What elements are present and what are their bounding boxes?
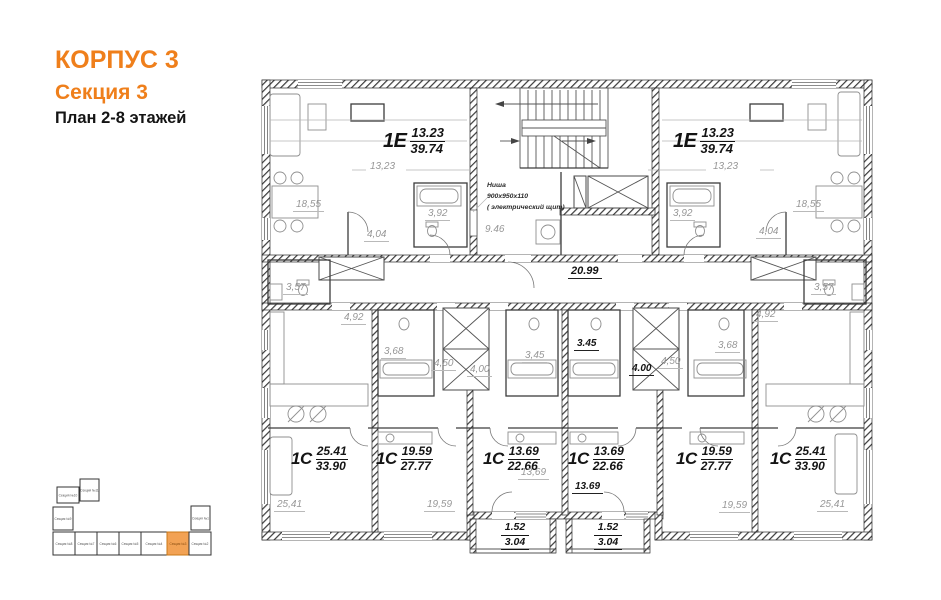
svg-text:Секция №8: Секция №8	[56, 542, 73, 546]
apartment-label-1s-r2: 1С 13.6922.66	[568, 445, 625, 474]
room-area-label: 4.00	[629, 363, 654, 376]
minimap-section-3[interactable]: Секция №3	[167, 532, 189, 555]
minimap-section-8[interactable]: Секция №8	[53, 532, 75, 555]
minimap-section-4[interactable]: Секция №4	[141, 532, 167, 555]
minimap-section-1[interactable]: Секция №1	[191, 506, 210, 530]
electrical-niche	[470, 210, 477, 236]
room-area-label: 4,92	[341, 312, 366, 325]
area-living: 13.69	[593, 445, 625, 460]
plan-title: План 2-8 этажей	[55, 109, 186, 129]
svg-text:Секция №2: Секция №2	[192, 542, 209, 546]
staircase	[495, 88, 608, 168]
room-area-label: 19,59	[424, 499, 455, 512]
area-total: 33.90	[795, 460, 827, 474]
area-total: 22.66	[593, 460, 625, 474]
svg-text:Секция №11: Секция №11	[80, 489, 99, 493]
area-living: 13.69	[508, 445, 540, 460]
area-living: 13.23	[410, 126, 445, 142]
stair-arrow-up-icon	[495, 101, 504, 107]
area-living: 25.41	[795, 445, 827, 460]
apartment-label-1e-right: 1Е 13.2339.74	[673, 126, 735, 157]
room-area-label: 3.45	[574, 338, 599, 351]
room-area-label: 25,41	[817, 499, 848, 512]
room-area-label: 3,68	[381, 346, 406, 359]
niche-annotation: Ниша 900х950х110 ( электрический щит)	[487, 181, 565, 214]
apartment-label-1s-l1: 1С 19.5927.77	[376, 445, 433, 474]
minimap-section-2[interactable]: Секция №2	[189, 532, 211, 555]
minimap-section-5[interactable]: Секция №5	[119, 532, 141, 555]
apartment-label-1s-r1: 1С 19.5927.77	[676, 445, 733, 474]
title-block: КОРПУС 3 Секция 3 План 2-8 этажей	[55, 45, 186, 129]
apartment-type: 1С	[291, 449, 312, 469]
vent-shafts	[443, 308, 679, 390]
balcony-area-full: 3.04	[501, 536, 529, 551]
apartment-type: 1Е	[383, 130, 406, 153]
minimap: Секция №10 Секция №11 Секция №9 Секция №…	[53, 479, 211, 555]
room-dim-label: 13,23	[367, 161, 398, 173]
minimap-section-9[interactable]: Секция №9	[53, 507, 73, 530]
apartment-type: 1С	[483, 449, 504, 469]
room-area-label: 13.69	[572, 481, 603, 494]
area-living: 19.59	[401, 445, 433, 460]
minimap-section-7[interactable]: Секция №7	[75, 532, 97, 555]
balcony-label-left: 1.52 3.04	[496, 521, 534, 550]
minimap-section-11[interactable]: Секция №11	[80, 479, 99, 501]
apartment-label-1s-l0: 1С 25.4133.90	[291, 445, 348, 474]
stair-arrow-icon	[511, 138, 520, 144]
room-area-label: 4,50	[658, 356, 683, 369]
minimap-section-10[interactable]: Секция №10	[57, 487, 79, 503]
area-living: 19.59	[701, 445, 733, 460]
washer	[536, 220, 560, 244]
room-area-label: 3,57	[811, 282, 836, 295]
room-area-label: 3,92	[425, 208, 450, 221]
apartment-label-1e-left: 1Е 13.2339.74	[383, 126, 445, 157]
apartment-type: 1С	[676, 449, 697, 469]
balcony-label-right: 1.52 3.04	[589, 521, 627, 550]
room-dim-label: 13,23	[710, 161, 741, 173]
apartment-type: 1С	[376, 449, 397, 469]
section-title: Секция 3	[55, 80, 186, 105]
room-area-label: 3,92	[670, 208, 695, 221]
svg-text:Секция №5: Секция №5	[122, 542, 139, 546]
niche-line: ( электрический щит)	[487, 203, 565, 214]
svg-text:Секция №4: Секция №4	[146, 542, 163, 546]
area-total: 39.74	[410, 142, 445, 157]
leader-lines	[270, 120, 862, 170]
area-total: 27.77	[401, 460, 433, 474]
area-total: 39.74	[700, 142, 735, 157]
svg-text:Секция №10: Секция №10	[59, 494, 78, 498]
svg-text:Секция №9: Секция №9	[55, 517, 72, 521]
apartment-type: 1С	[770, 449, 791, 469]
room-area-label: 4,92	[753, 309, 778, 322]
room-area-label: 3,45	[522, 350, 547, 363]
room-area-label: 18,55	[293, 199, 324, 212]
corridor-area-label: 20.99	[568, 265, 602, 279]
area-total: 27.77	[701, 460, 733, 474]
svg-text:Секция №3: Секция №3	[170, 542, 187, 546]
room-area-label: 4,50	[431, 358, 456, 371]
building-title: КОРПУС 3	[55, 45, 186, 75]
niche-line: 900х950х110	[487, 192, 565, 203]
balcony-area-reduced: 1.52	[501, 521, 529, 536]
area-living: 25.41	[316, 445, 348, 460]
room-area-label: 13,69	[518, 467, 549, 480]
svg-text:Секция №7: Секция №7	[78, 542, 95, 546]
area-total: 33.90	[316, 460, 348, 474]
balcony-area-reduced: 1.52	[594, 521, 622, 536]
room-area-label: 3,68	[715, 340, 740, 353]
room-area-label: 18,55	[793, 199, 824, 212]
area-living: 13.23	[700, 126, 735, 142]
apartment-label-1s-r0: 1С 25.4133.90	[770, 445, 827, 474]
apartment-type: 1С	[568, 449, 589, 469]
room-area-label: 25,41	[274, 499, 305, 512]
floor-plan-page: Секция №10 Секция №11 Секция №9 Секция №…	[0, 0, 941, 600]
balcony-area-full: 3.04	[594, 536, 622, 551]
stair-arrow-icon	[587, 138, 596, 144]
apartment-type: 1Е	[673, 130, 696, 153]
svg-text:Секция №6: Секция №6	[100, 542, 117, 546]
room-area-label: 19,59	[719, 500, 750, 513]
room-area-label: 4,00	[467, 364, 492, 377]
minimap-section-6[interactable]: Секция №6	[97, 532, 119, 555]
svg-text:Секция №1: Секция №1	[192, 517, 209, 521]
room-area-label: 3,57	[283, 282, 308, 295]
room-area-label: 9.46	[482, 224, 507, 236]
niche-line: Ниша	[487, 181, 565, 192]
room-area-label: 4,04	[756, 226, 781, 239]
room-area-label: 4,04	[364, 229, 389, 242]
